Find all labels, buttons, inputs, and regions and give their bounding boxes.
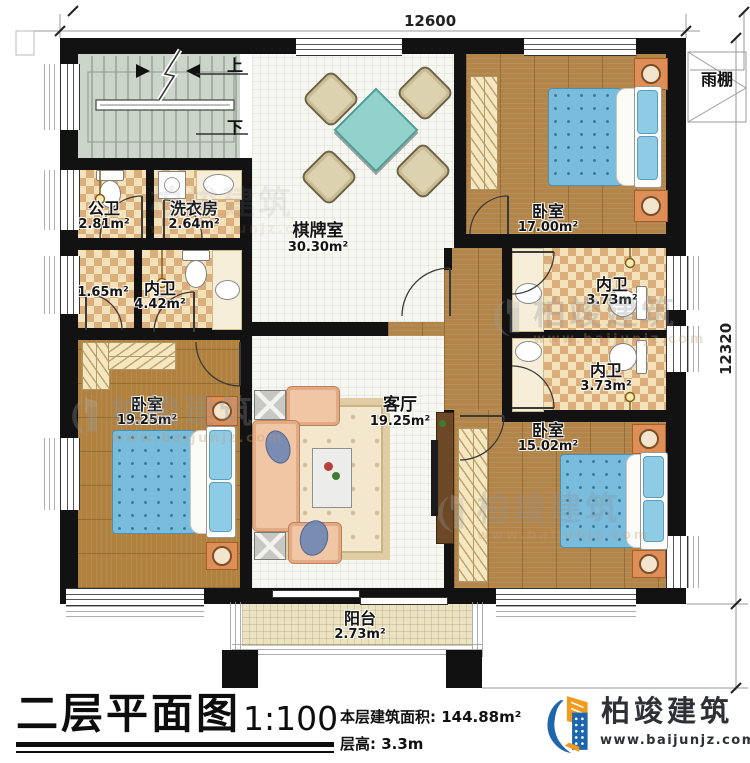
- tv-cabinet-icon: [436, 412, 454, 544]
- wall: [242, 322, 388, 336]
- wall: [454, 234, 666, 248]
- room-label-public-bath: 公卫 2.81m²: [78, 200, 129, 232]
- flower-icon: [324, 462, 333, 471]
- plant-icon: [439, 420, 446, 427]
- wall: [76, 238, 240, 250]
- corridor-floor: [444, 248, 502, 410]
- toilet-icon: [185, 260, 207, 288]
- room-label-laundry: 洗衣房 2.64m²: [168, 200, 219, 232]
- window-sill: [688, 256, 701, 310]
- washing-machine-icon: [158, 171, 186, 199]
- bedroom-br-entry-floor: [454, 410, 502, 422]
- title-underline: [16, 751, 334, 753]
- pillow-icon: [209, 482, 232, 532]
- sink-icon: [215, 280, 240, 300]
- window: [666, 256, 688, 310]
- toilet-icon: [636, 340, 647, 374]
- wall: [454, 54, 466, 234]
- wall: [76, 158, 240, 170]
- window-sill: [44, 256, 59, 314]
- window: [666, 536, 688, 588]
- balcony-railing: [232, 644, 482, 659]
- balcony-railing: [230, 602, 242, 657]
- wardrobe-icon: [470, 76, 498, 190]
- drawing-title: 二层平面图: [16, 691, 241, 737]
- room-label-living-room: 客厅 19.25m²: [370, 396, 430, 430]
- nightstand-icon: [632, 550, 666, 578]
- staircase-floor: [76, 54, 240, 158]
- sink-icon: [515, 283, 542, 304]
- room-label-bedroom-top-right: 卧室 17.00m²: [518, 203, 578, 235]
- pillow-icon: [643, 456, 664, 498]
- room-label-bedroom-bottom-right: 卧室 15.02m²: [518, 422, 578, 454]
- wardrobe-icon: [458, 428, 488, 582]
- sink-icon: [515, 341, 542, 362]
- stair-up-label: 上: [227, 52, 243, 76]
- pillow-icon: [209, 430, 232, 480]
- window-sill: [66, 606, 204, 618]
- nightstand-icon: [206, 396, 238, 426]
- room-label-inner-bath-right-2: 内卫 3.73m²: [580, 362, 631, 394]
- pillow-icon: [637, 136, 658, 180]
- nightstand-icon: [634, 190, 668, 222]
- bed-icon: [548, 88, 622, 186]
- wall: [666, 38, 686, 604]
- window: [666, 326, 688, 372]
- sink-icon: [203, 174, 234, 195]
- title-underline: [16, 742, 334, 747]
- brand-logo-icon: [544, 694, 596, 754]
- window: [524, 38, 636, 56]
- window: [60, 170, 80, 230]
- wardrobe-icon: [108, 342, 176, 370]
- dimension-top: 12600: [404, 12, 456, 30]
- floor-area-info: 本层建筑面积: 144.88m²: [340, 706, 521, 727]
- drawing-scale: 1:100: [243, 699, 338, 738]
- balcony-column: [222, 650, 258, 688]
- room-label-game-room: 棋牌室 30.30m²: [288, 222, 348, 256]
- side-table-icon: [254, 390, 286, 420]
- sliding-door: [272, 590, 360, 598]
- window: [496, 588, 636, 606]
- balcony-column: [446, 650, 482, 688]
- window-sill: [44, 170, 59, 230]
- floorplan-page: 公卫 2.81m² 洗衣房 2.64m² 棋牌室 30.30m² 卧室 17.0…: [0, 0, 750, 763]
- canopy-label: 雨棚: [688, 66, 746, 90]
- nightstand-icon: [206, 542, 238, 570]
- bed-icon: [112, 430, 196, 534]
- window: [66, 588, 204, 606]
- corridor-passage-floor: [388, 322, 444, 336]
- pillow-icon: [637, 90, 658, 134]
- pillow-icon: [643, 500, 664, 542]
- window: [60, 64, 80, 130]
- bed-sheet: [616, 88, 636, 186]
- wall: [146, 170, 154, 238]
- stair-down-label: 下: [227, 114, 243, 138]
- room-label-bedroom-bottom-left: 卧室 19.25m²: [117, 396, 177, 428]
- window: [296, 38, 402, 56]
- sliding-door: [360, 597, 448, 605]
- nightstand-icon: [632, 424, 666, 454]
- side-table-icon: [254, 532, 286, 560]
- window-sill: [496, 606, 636, 618]
- room-label-inner-bath-left: 内卫 4.42m²: [134, 280, 185, 312]
- wardrobe-icon: [82, 342, 110, 390]
- window-sill: [44, 64, 59, 130]
- room-label-inner-bath-right-1: 内卫 3.73m²: [586, 276, 637, 308]
- flower-icon: [332, 472, 340, 480]
- brand-name: 柏竣建筑: [601, 697, 733, 726]
- balcony-railing: [472, 602, 484, 657]
- window-sill: [44, 438, 59, 510]
- room-label-closet: 1.65m²: [77, 286, 128, 301]
- room-label-balcony: 阳台 2.73m²: [334, 610, 385, 642]
- tv-icon: [431, 440, 438, 516]
- floor-height-info: 层高: 3.3m: [340, 733, 423, 754]
- window: [60, 438, 80, 510]
- brand-website: www.baijunjz.com: [600, 733, 750, 748]
- window-sill: [688, 326, 701, 372]
- wall: [444, 248, 452, 270]
- wall: [502, 248, 512, 410]
- dimension-right: 12320: [717, 315, 735, 375]
- window-sill: [688, 536, 701, 588]
- wall: [240, 158, 252, 588]
